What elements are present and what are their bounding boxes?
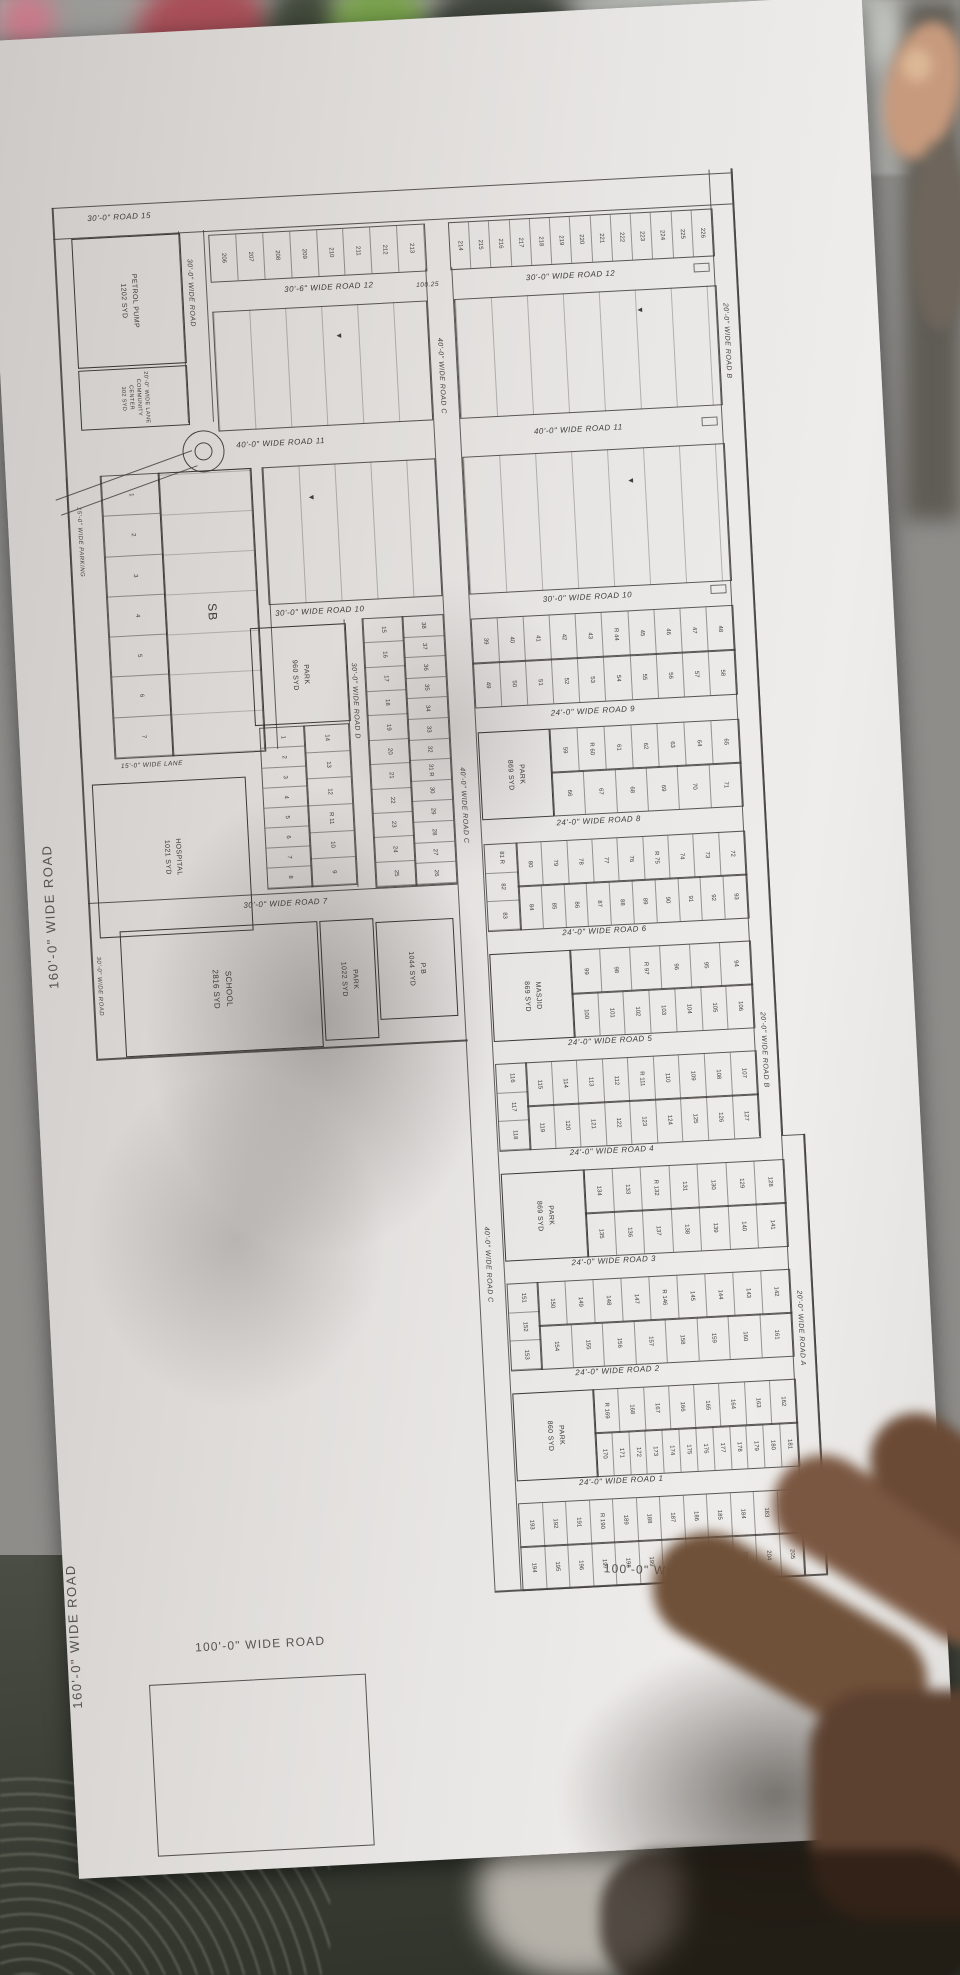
plot-cell: 199 <box>639 1540 665 1584</box>
plot-cell: 5 <box>264 806 309 828</box>
plot-cell: 207 <box>236 233 265 280</box>
plot-cell: 62 <box>631 724 660 768</box>
plot-cell: 28 <box>413 821 454 844</box>
plot-cell: R 44 <box>602 611 630 656</box>
plot-cell: 210 <box>317 229 346 276</box>
plot-cell: 100 <box>572 992 600 1036</box>
sb-block: SB <box>158 468 267 757</box>
plot-cell: 49 <box>474 662 502 707</box>
plot-cell: 4 <box>107 594 167 637</box>
plot-cell: 6 <box>111 675 171 718</box>
plot-cell: R 146 <box>649 1276 679 1320</box>
road-11-left-label: 40'-0" WIDE ROAD 11 <box>236 436 325 450</box>
plot-cell: 121 <box>579 1102 607 1146</box>
plot-cell: 136 <box>614 1210 645 1254</box>
plot-row-100-106: 100101102103104105106 <box>571 983 755 1037</box>
plot-cell: 107 <box>730 1051 758 1095</box>
plot-cell: R 60 <box>577 727 606 771</box>
plot-cell: 58 <box>709 650 737 695</box>
plot-cell: 93 <box>724 875 749 919</box>
plot-cell: 189 <box>613 1498 639 1542</box>
plot-cell: 145 <box>677 1274 707 1318</box>
plot-cell: 133 <box>612 1167 643 1211</box>
masjid-label: MASJID 869 SYD <box>521 980 545 1012</box>
plot-cell: 3 <box>105 554 165 597</box>
plot-cell: 115 <box>526 1062 554 1106</box>
plot-cell: 152 <box>509 1312 540 1342</box>
plot-cell: 195 <box>545 1545 571 1589</box>
plot-cell: 10 <box>310 831 355 860</box>
fingernail <box>902 48 932 82</box>
plot-cell: 35 <box>406 677 447 700</box>
plot-cell: 194 <box>521 1546 547 1590</box>
plot-cell: 8 <box>267 866 312 888</box>
plot-row-66-71: 666768697071 <box>552 762 744 817</box>
block-11-10-left <box>261 458 442 605</box>
plot-cell: 99 <box>570 949 602 994</box>
plot-cell: 94 <box>720 941 752 986</box>
plot-cell: 90 <box>655 878 680 922</box>
plot-cell: 70 <box>678 764 712 809</box>
plot-cell: 213 <box>397 225 426 272</box>
plot-cell: 222 <box>611 214 634 261</box>
plot-cell: 223 <box>631 213 654 260</box>
hospital-block: HOSPITAL 1021 SYD <box>92 777 254 939</box>
pb-label: P.B 1044 SYD <box>405 951 429 987</box>
road-9-label: 24'-0" WIDE ROAD 9 <box>550 704 635 717</box>
park-960-label: PARK 960 SYD <box>288 659 312 691</box>
plot-cell: 158 <box>666 1318 700 1363</box>
plot-cell: 221 <box>590 215 613 262</box>
background-shadow <box>910 140 960 330</box>
plot-cell: 216 <box>489 220 512 267</box>
plot-cell: 159 <box>697 1316 731 1361</box>
plot-cell: 140 <box>729 1204 760 1248</box>
left-road-strip-label: 30'-0" WIDE ROAD <box>95 956 104 1016</box>
road-12-right-label: 30'-0" WIDE ROAD 12 <box>526 269 616 283</box>
dimension-box <box>701 416 717 426</box>
plot-cell: 96 <box>660 945 692 990</box>
plot-cell: 200 <box>662 1539 688 1583</box>
road-11-right-label: 40'-0" WIDE ROAD 11 <box>534 422 623 436</box>
paper-sheet: 160'-0" WIDE ROAD 160'-0" WIDE ROAD 100'… <box>0 0 958 1879</box>
plot-row-135-141: 135136137138139140141 <box>585 1202 789 1258</box>
plot-cell: 155 <box>571 1323 605 1368</box>
plot-cell: 67 <box>584 769 618 814</box>
plot-cell: 141 <box>757 1203 788 1247</box>
plot-cell: 19 <box>368 715 409 741</box>
plot-cell: 57 <box>682 651 710 696</box>
plot-cell: 29 <box>412 800 453 823</box>
plot-cell: 192 <box>543 1502 569 1546</box>
plot-cell: 187 <box>660 1496 686 1540</box>
plot-cell: 123 <box>630 1100 658 1144</box>
plot-cell: 22 <box>371 787 412 813</box>
plot-cell: 88 <box>610 881 635 925</box>
plot-cell: 68 <box>615 768 649 813</box>
plot-cell: 55 <box>630 654 658 699</box>
plot-cell: 109 <box>679 1054 707 1098</box>
plot-cell: R 111 <box>628 1057 656 1101</box>
plot-cell: 120 <box>554 1104 582 1148</box>
plot-cell: 185 <box>707 1493 733 1537</box>
plot-cell: 56 <box>656 653 684 698</box>
plot-cell: 143 <box>733 1271 763 1315</box>
plot-cell: 149 <box>565 1280 595 1324</box>
park-860-label: PARK 860 SYD <box>544 1419 568 1451</box>
road-10-right-label: 30'-0" WIDE ROAD 10 <box>543 590 633 604</box>
plot-cell: 206 <box>209 234 238 281</box>
plot-cell: 110 <box>654 1055 682 1099</box>
community-center-block: 20'-0" WIDE LANE COMMUNITY CENTER 302 SY… <box>78 365 190 431</box>
plot-cell: 36 <box>405 656 446 679</box>
block-11-10-right <box>462 443 732 595</box>
plot-cell: 27 <box>414 841 455 864</box>
road-12-left-label: 30'-6" WIDE ROAD 12 <box>284 280 374 294</box>
plot-cell: 106 <box>727 984 755 1028</box>
plot-cell: 126 <box>707 1096 735 1140</box>
school-block: SCHOOL 2816 SYD <box>120 921 324 1057</box>
plot-cell: 114 <box>552 1061 580 1105</box>
plot-cell: 211 <box>343 227 372 274</box>
plot-cell: 51 <box>526 659 554 704</box>
plot-cell: 135 <box>586 1212 617 1256</box>
plot-cell: 12 <box>307 777 352 806</box>
plot-cell: 39 <box>472 618 500 663</box>
plot-cell: 129 <box>726 1161 757 1205</box>
plot-cell: 31 R <box>410 759 451 782</box>
road-10-left-label: 30'-0" WIDE ROAD 10 <box>275 604 365 618</box>
plot-cell: 147 <box>621 1277 651 1321</box>
plot-cell: 38 <box>402 615 443 638</box>
plot-cell: 98 <box>600 948 632 993</box>
section-arrow-icon: ▲ <box>626 476 635 484</box>
plot-cell: R 75 <box>643 836 671 880</box>
plot-cell: 25 <box>375 860 416 886</box>
lane-15-label: 15'-0" WIDE LANE <box>121 760 183 770</box>
plot-cell: 64 <box>685 721 714 765</box>
plot-cell: 196 <box>568 1544 594 1588</box>
plot-cell: 52 <box>552 658 580 703</box>
plot-cell: 72 <box>719 832 747 876</box>
plot-cell: 69 <box>647 766 681 811</box>
plot-cell: 103 <box>649 988 677 1032</box>
plot-cell: 87 <box>587 882 612 926</box>
plot-cell: 188 <box>636 1497 662 1541</box>
plot-row-214-226: 214215216217218219220221222223224225226 <box>448 208 715 270</box>
plot-cell: 191 <box>566 1501 592 1545</box>
photo-of-site-plan: 160'-0" WIDE ROAD 160'-0" WIDE ROAD 100'… <box>0 0 960 1975</box>
plot-row-170-181: 170171172173174175176177178179180181 <box>594 1422 800 1478</box>
plot-cell: 54 <box>604 655 632 700</box>
dimension-box <box>710 584 726 594</box>
plot-cell: 138 <box>672 1207 703 1251</box>
plot-cell: 9 <box>311 857 356 886</box>
plot-cell: 128 <box>755 1160 786 1204</box>
plot-cell: 34 <box>407 697 448 720</box>
plot-cell: 117 <box>498 1092 529 1122</box>
plot-cell: 59 <box>551 728 580 772</box>
plot-cell: 91 <box>678 877 703 921</box>
plot-cell: 112 <box>603 1058 631 1102</box>
plot-cell: 47 <box>680 607 708 652</box>
plot-cell: 125 <box>681 1097 709 1141</box>
plot-cell: 50 <box>500 661 528 706</box>
plot-cell: 161 <box>760 1313 794 1358</box>
plot-cell: 17 <box>365 666 406 692</box>
plot-cell: 2 <box>103 514 163 557</box>
plot-cell: 30 <box>411 780 452 803</box>
plot-cell: 1 <box>260 726 305 748</box>
plot-cell: 101 <box>598 991 626 1035</box>
plot-cell: 119 <box>528 1105 556 1149</box>
plot-cell: 37 <box>404 636 445 659</box>
plot-cell: 24 <box>374 836 415 862</box>
plot-cell: 63 <box>658 723 687 767</box>
park-869-label-a: PARK 869 SYD <box>504 758 528 790</box>
plot-cell: 167 <box>644 1386 671 1430</box>
plot-cell: 26 <box>415 862 456 885</box>
plot-cell: 95 <box>690 943 722 988</box>
plot-cell: 163 <box>744 1381 771 1425</box>
plot-cell: 78 <box>567 840 595 884</box>
road-8-label: 24'-0" WIDE ROAD 8 <box>556 814 641 827</box>
plot-cell: 220 <box>570 216 593 263</box>
plot-cell: 5 <box>109 635 169 678</box>
plot-cell: 186 <box>683 1494 709 1538</box>
plot-cell: 137 <box>643 1209 674 1253</box>
plot-cell: 71 <box>709 763 743 808</box>
plot-cell: 203 <box>733 1535 759 1579</box>
school-label: SCHOOL 2816 SYD <box>208 969 236 1010</box>
plot-cell: 13 <box>305 751 350 780</box>
section-arrow-icon: ▲ <box>334 331 343 339</box>
plot-cell: 154 <box>540 1324 574 1369</box>
plot-cell: 224 <box>651 212 674 259</box>
plot-cell: 162 <box>770 1380 797 1424</box>
park-1022-block: PARK 1022 SYD <box>319 918 379 1041</box>
park-1022-label: PARK 1022 SYD <box>337 961 361 997</box>
plot-cell: 218 <box>530 218 553 265</box>
plot-cell: 74 <box>668 834 696 878</box>
plot-cell: 122 <box>605 1101 633 1145</box>
plot-cell: 23 <box>373 812 414 838</box>
plot-cell: 85 <box>542 884 567 928</box>
plot-cell: 156 <box>603 1321 637 1366</box>
park-869-label-b: PARK 869 SYD <box>533 1200 557 1232</box>
plot-cell: 102 <box>624 990 652 1034</box>
plot-cell: 2 <box>261 746 306 768</box>
plot-cell: 48 <box>706 606 734 651</box>
plot-row-206-213: 206207208209210211212213 <box>208 223 427 282</box>
plot-cell: 214 <box>449 222 472 269</box>
park-860-block: PARK 860 SYD <box>512 1389 598 1481</box>
plot-cell: 42 <box>550 614 578 659</box>
sb-label: SB <box>202 603 222 622</box>
plot-cell: 82 <box>486 872 519 902</box>
plot-cell: 134 <box>584 1169 615 1213</box>
plot-cell: 219 <box>550 217 573 264</box>
plot-cell: 208 <box>263 232 292 279</box>
section-arrow-icon: ▲ <box>635 306 644 314</box>
plot-cell: 168 <box>618 1388 645 1432</box>
section-arrow-icon: ▲ <box>306 493 315 501</box>
plot-cell: 18 <box>366 690 407 716</box>
block-12-11-right <box>454 285 723 419</box>
plot-cell: 65 <box>712 720 741 764</box>
plot-cell: 105 <box>701 986 729 1030</box>
plot-cell: 127 <box>732 1094 760 1138</box>
park-869-block-b: PARK 869 SYD <box>501 1169 589 1261</box>
plot-cell: 41 <box>524 615 552 660</box>
plot-cell: 40 <box>498 617 526 662</box>
plot-cell: 166 <box>669 1385 696 1429</box>
masjid-block: MASJID 869 SYD <box>489 950 575 1042</box>
plot-cell: 53 <box>578 657 606 702</box>
plot-cell: 20 <box>369 739 410 765</box>
plot-cell: 212 <box>370 226 399 273</box>
plot-cell: 205 <box>779 1532 805 1576</box>
plot-cell: 157 <box>634 1319 668 1364</box>
petrol-pump-label: PETROL PUMP 1202 SYD <box>116 273 141 328</box>
plot-cell: 201 <box>686 1537 712 1581</box>
plot-cell: 61 <box>604 725 633 769</box>
site-plan-drawing: 30'-0" ROAD 15 PETROL PUMP 1202 SYD 20'-… <box>0 0 958 1879</box>
plot-cell: R 132 <box>641 1166 672 1210</box>
plot-cell: 142 <box>761 1270 791 1314</box>
plot-cell: 79 <box>542 841 570 885</box>
plot-cell: 43 <box>576 613 604 658</box>
plot-cell: 204 <box>756 1534 782 1578</box>
plot-cell: 151 <box>508 1283 539 1313</box>
plot-cell: 4 <box>263 786 308 808</box>
plot-cell: 6 <box>265 826 310 848</box>
plot-cell: 118 <box>499 1121 530 1151</box>
plot-cell: 193 <box>519 1503 545 1547</box>
plot-cell: 92 <box>701 876 726 920</box>
park-960-block: PARK 960 SYD <box>250 623 351 726</box>
plot-cell: 164 <box>719 1382 746 1426</box>
plot-cell: 198 <box>615 1541 641 1585</box>
plot-cell: 16 <box>364 642 405 668</box>
plot-cell: 86 <box>564 883 589 927</box>
plot-cell: 21 <box>370 763 411 789</box>
plot-cell: 7 <box>113 715 173 758</box>
plot-cell: 148 <box>593 1279 623 1323</box>
plot-cell: 14 <box>304 724 349 753</box>
finger-top-right <box>880 0 960 330</box>
pb-block: P.B 1044 SYD <box>375 918 458 1020</box>
plot-cell: 45 <box>628 610 656 655</box>
plot-cell: 202 <box>709 1536 735 1580</box>
plot-cell: 77 <box>592 838 620 882</box>
hospital-label: HOSPITAL 1021 SYD <box>161 838 185 876</box>
plot-cell: 150 <box>538 1282 568 1326</box>
plot-cell: 66 <box>553 771 587 816</box>
plot-cell: 217 <box>510 219 533 266</box>
plot-cell: 225 <box>671 211 694 258</box>
plot-cell: R 169 <box>593 1389 620 1433</box>
plot-cell: 153 <box>511 1340 542 1370</box>
plot-cell: 46 <box>654 609 682 654</box>
plot-cell: 130 <box>698 1163 729 1207</box>
community-center-label: 20'-0" WIDE LANE COMMUNITY CENTER 302 SY… <box>117 371 150 425</box>
plot-cell: R 97 <box>630 946 662 991</box>
plot-cell: 197 <box>592 1542 618 1586</box>
plot-cell: 184 <box>730 1492 756 1536</box>
plot-cell: 33 <box>408 718 449 741</box>
plot-cell: 3 <box>262 766 307 788</box>
petrol-pump-block: PETROL PUMP 1202 SYD <box>71 233 187 369</box>
plot-cell: 108 <box>705 1053 733 1097</box>
plot-cell: 89 <box>633 879 658 923</box>
plot-cell: 113 <box>577 1059 605 1103</box>
plot-cell: 160 <box>729 1314 763 1359</box>
plot-cell: 7 <box>266 846 311 868</box>
plot-cell: 104 <box>675 987 703 1031</box>
park-869-block-a: PARK 869 SYD <box>478 729 555 821</box>
plot-cell: 84 <box>519 885 544 929</box>
road-7-label: 30'-0" WIDE ROAD 7 <box>243 897 328 910</box>
block-12-11-left <box>212 300 433 431</box>
plot-cell: R 190 <box>589 1499 615 1543</box>
plot-cell: 165 <box>694 1384 721 1428</box>
plot-cell: 181 <box>780 1423 799 1467</box>
plot-cell: 215 <box>469 221 492 268</box>
dimension-box <box>693 263 709 273</box>
plot-cell: 182 <box>777 1490 803 1534</box>
plot-cell: 80 <box>516 842 544 886</box>
plot-cell: 15 <box>363 617 404 643</box>
plot-cell: 116 <box>496 1063 527 1093</box>
plot-cell: 32 <box>409 739 450 762</box>
plot-cell: 139 <box>700 1206 731 1250</box>
plot-cell: 144 <box>705 1273 735 1317</box>
plot-cell: 76 <box>618 837 646 881</box>
plot-cell: 209 <box>290 230 319 277</box>
plot-cell: 83 <box>488 901 521 931</box>
plot-cell: 73 <box>694 833 722 877</box>
plot-cell: 81 R <box>485 844 518 874</box>
plot-cell: 183 <box>754 1491 780 1535</box>
plot-cell: 124 <box>656 1098 684 1142</box>
plot-cell: R 11 <box>308 804 353 833</box>
plot-cell: 131 <box>669 1164 700 1208</box>
plot-cell: 1 <box>101 474 161 517</box>
